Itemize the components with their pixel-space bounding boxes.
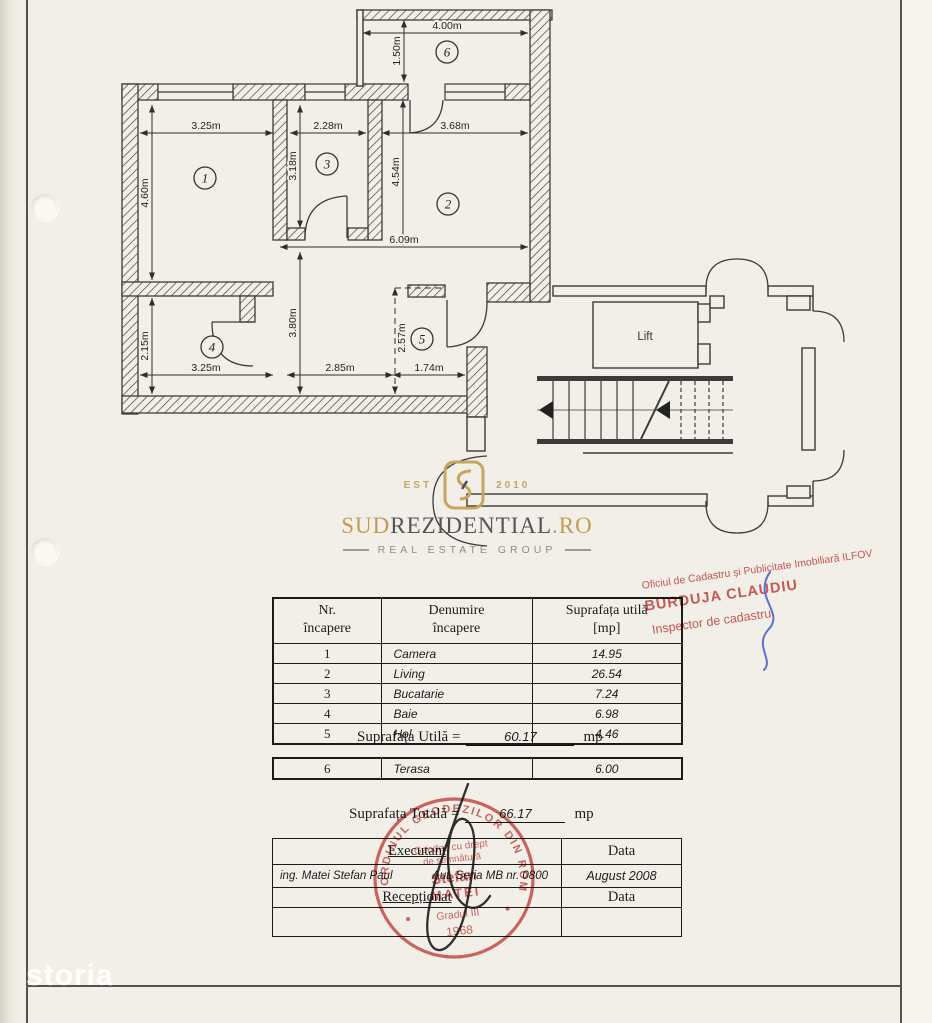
row-nr: 6 bbox=[273, 758, 381, 779]
dim-label: 1.74m bbox=[414, 362, 443, 374]
svg-text:2: 2 bbox=[445, 197, 452, 212]
empty-cell bbox=[562, 908, 682, 937]
room-area-table: Nr.încapere Denumireîncapere Suprafața u… bbox=[272, 597, 683, 745]
row-area: 26.54 bbox=[532, 664, 682, 684]
svg-text:6: 6 bbox=[444, 45, 451, 60]
lift-label: Lift bbox=[637, 331, 653, 343]
row-name: Baie bbox=[381, 704, 532, 724]
dim-label: 3.80m bbox=[287, 308, 299, 337]
logo-tagline-dash bbox=[565, 549, 591, 551]
logo-est-label: EST bbox=[404, 480, 432, 491]
row-nr: 4 bbox=[273, 704, 381, 724]
svg-text:3: 3 bbox=[323, 157, 331, 172]
header-denumire: Denumireîncapere bbox=[381, 598, 532, 644]
row-name: Living bbox=[381, 664, 532, 684]
row-area: 14.95 bbox=[532, 644, 682, 664]
logo-brand-ro: .RO bbox=[552, 513, 593, 538]
svg-text:1: 1 bbox=[202, 171, 209, 186]
row-nr: 1 bbox=[273, 644, 381, 664]
dim-label: 6.09m bbox=[389, 234, 418, 246]
thin-walls bbox=[357, 10, 815, 506]
table-header-row: Nr.încapere Denumireîncapere Suprafața u… bbox=[273, 598, 682, 644]
row-nr: 3 bbox=[273, 684, 381, 704]
svg-text:4: 4 bbox=[209, 340, 216, 355]
logo-shield-icon bbox=[442, 459, 486, 511]
dim-label: 4.00m bbox=[432, 20, 461, 32]
dimension-labels: 4.00m 1.50m 3.25m 2.28m 3.68m 4.60m 3.18… bbox=[139, 20, 470, 374]
stair-arrow-icon bbox=[539, 401, 553, 419]
row-area: 7.24 bbox=[532, 684, 682, 704]
util-value: 60.17 bbox=[466, 729, 574, 746]
blue-pen-mark bbox=[742, 566, 812, 676]
dim-label: 2.28m bbox=[313, 120, 342, 132]
storia-watermark: storia bbox=[26, 959, 114, 993]
date-value: August 2008 bbox=[562, 865, 682, 888]
total-unit: mp bbox=[574, 806, 593, 822]
dim-label: 2.57m bbox=[396, 323, 408, 352]
dim-label: 4.54m bbox=[390, 157, 402, 186]
dim-label: 3.18m bbox=[287, 151, 299, 180]
table-row: 3Bucatarie7.24 bbox=[273, 684, 682, 704]
svg-text:5: 5 bbox=[419, 332, 426, 347]
dim-label: 2.15m bbox=[139, 331, 151, 360]
logo-year-label: 2010 bbox=[496, 480, 530, 491]
row-name: Bucatarie bbox=[381, 684, 532, 704]
scanned-document-page: 4.00m 1.50m 3.25m 2.28m 3.68m 4.60m 3.18… bbox=[0, 0, 932, 1023]
dim-label: 3.25m bbox=[191, 362, 220, 374]
table-row: 4Baie6.98 bbox=[273, 704, 682, 724]
row-name: Camera bbox=[381, 644, 532, 664]
punch-hole-bottom bbox=[31, 538, 58, 565]
windows bbox=[158, 84, 505, 100]
logo-brand-rezidential: REZIDENTIAL bbox=[390, 513, 552, 538]
dim-label: 1.50m bbox=[391, 36, 403, 65]
punch-hole-top bbox=[31, 194, 58, 221]
table-row: 2Living26.54 bbox=[273, 664, 682, 684]
staircase bbox=[537, 376, 733, 444]
data-header: Data bbox=[562, 839, 682, 865]
logo-tagline-dash bbox=[343, 549, 369, 551]
table-row: 6Terasa6.00 bbox=[273, 758, 682, 779]
header-nr: Nr.încapere bbox=[273, 598, 381, 644]
row-area: 6.00 bbox=[532, 758, 682, 779]
row-area: 6.98 bbox=[532, 704, 682, 724]
row-nr: 2 bbox=[273, 664, 381, 684]
terasa-row-table: 6Terasa6.00 bbox=[272, 757, 683, 780]
table-row: 1Camera14.95 bbox=[273, 644, 682, 664]
page-border-bottom bbox=[26, 985, 902, 987]
dim-label: 3.68m bbox=[440, 120, 469, 132]
dimension-lines bbox=[140, 20, 528, 394]
agency-logo: EST 2010 SUDREZIDENTIAL.RO REAL ESTATE G… bbox=[334, 458, 600, 556]
util-label: Suprafața Utilă = bbox=[357, 729, 460, 745]
walls-hatched bbox=[122, 10, 552, 417]
logo-brand-sud: SUD bbox=[341, 513, 390, 538]
data-header: Data bbox=[562, 888, 682, 908]
row-name: Terasa bbox=[381, 758, 532, 779]
dim-label: 2.85m bbox=[325, 362, 354, 374]
logo-tagline: REAL ESTATE GROUP bbox=[378, 544, 557, 556]
dim-label: 4.60m bbox=[139, 178, 151, 207]
dim-label: 3.25m bbox=[191, 120, 220, 132]
signature bbox=[398, 778, 528, 968]
suprafata-utila-line: Suprafața Utilă =60.17mp bbox=[357, 729, 603, 746]
logo-brand-name: SUDREZIDENTIAL.RO bbox=[334, 513, 600, 539]
util-unit: mp bbox=[583, 729, 602, 745]
